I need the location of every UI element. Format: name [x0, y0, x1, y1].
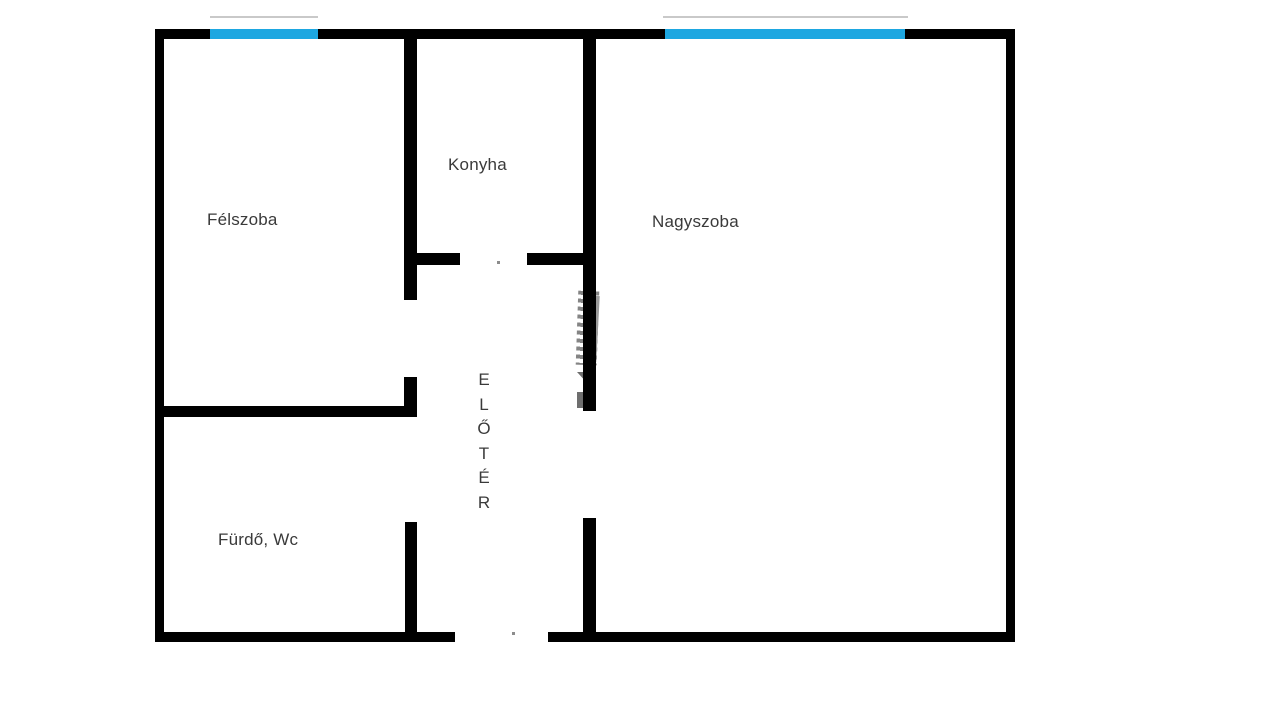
wall-furdo-eloter-lower — [405, 522, 417, 642]
window-nagyszoba — [665, 29, 905, 39]
room-label-konyha: Konyha — [448, 155, 507, 175]
eloter-letter-6: R — [472, 491, 496, 516]
floorplan: Félszoba Konyha Nagyszoba Fürdő, Wc E L … — [0, 0, 1280, 725]
eloter-letter-4: T — [472, 442, 496, 467]
wall-outer-right — [1006, 29, 1015, 642]
eloter-letter-3: Ő — [472, 417, 496, 442]
wall-outer-top-seg3 — [905, 29, 1015, 39]
window-outer-line-left — [210, 16, 318, 18]
room-label-furdo-wc: Fürdő, Wc — [218, 530, 298, 550]
eloter-letter-2: L — [472, 393, 496, 418]
wall-outer-left — [155, 29, 164, 642]
door-mark-entrance — [512, 632, 515, 635]
window-outer-line-right — [663, 16, 908, 18]
room-label-eloter: E L Ő T É R — [472, 368, 496, 516]
eloter-letter-1: E — [472, 368, 496, 393]
wall-outer-top-seg2 — [318, 29, 665, 39]
window-felszoba — [210, 29, 318, 39]
wall-felszoba-furdo — [155, 406, 417, 417]
room-label-nagyszoba: Nagyszoba — [652, 212, 739, 232]
wall-nagyszoba-upper — [583, 39, 596, 411]
eloter-letter-5: É — [472, 466, 496, 491]
wall-felszoba-konyha — [404, 39, 417, 300]
wall-outer-bottom-seg2 — [548, 632, 1015, 642]
wall-konyha-bottom-left-stub — [417, 253, 460, 265]
wall-nagyszoba-lower — [583, 518, 596, 642]
room-label-felszoba: Félszoba — [207, 210, 278, 230]
door-mark-konyha — [497, 261, 500, 264]
